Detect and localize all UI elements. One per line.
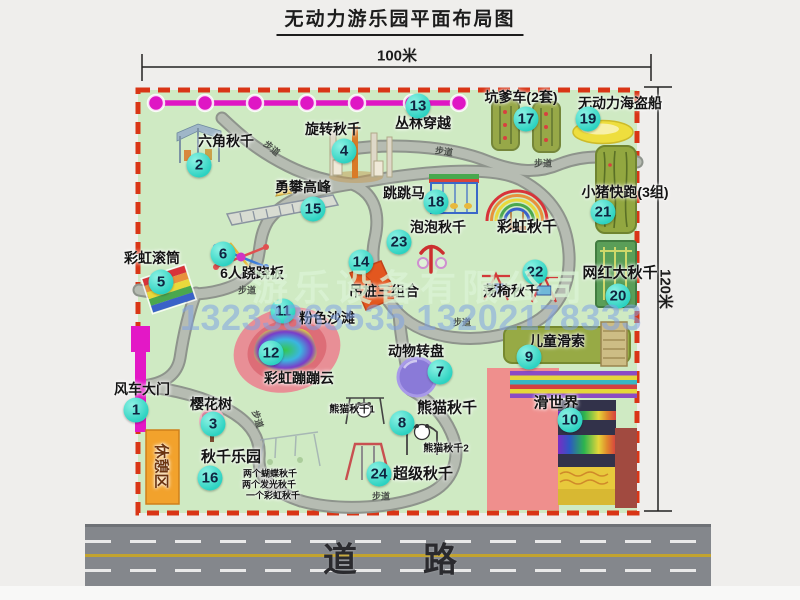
poi-badge-22: 22 bbox=[523, 260, 548, 285]
annotation-label: 熊猫秋千1 bbox=[329, 401, 375, 416]
poi-badge-14: 14 bbox=[349, 250, 374, 275]
poi-label-20: 网红大秋千 bbox=[582, 262, 657, 283]
poi-badge-24: 24 bbox=[367, 462, 392, 487]
walkway-label: 步道 bbox=[372, 490, 390, 503]
poi-label-21: 小猪快跑(3组) bbox=[581, 182, 668, 202]
walkway-label: 步道 bbox=[534, 157, 552, 170]
poi-label-12: 彩虹蹦蹦云 bbox=[264, 368, 334, 388]
poi-badge-23: 23 bbox=[387, 230, 412, 255]
walkway-label: 步道 bbox=[261, 137, 283, 159]
poi-label-17: 坑爹车(2套) bbox=[484, 87, 557, 107]
poi-label-15: 勇攀高峰 bbox=[275, 177, 331, 197]
annotation-label: 休憩区 bbox=[152, 443, 173, 488]
poi-badge-20: 20 bbox=[606, 284, 631, 309]
walkway-label: 步道 bbox=[434, 143, 454, 158]
poi-label-5: 彩虹滚筒 bbox=[124, 248, 180, 268]
walkway-label: 步道 bbox=[453, 316, 471, 329]
poi-badge-11: 11 bbox=[271, 299, 296, 324]
poi-label-14: 吊桩三组合 bbox=[349, 281, 419, 301]
poi-label-4: 旋转秋千 bbox=[305, 119, 361, 139]
poi-label-24: 超级秋千 bbox=[393, 463, 453, 484]
poi-badge-1: 1 bbox=[124, 398, 149, 423]
poi-badge-3: 3 bbox=[201, 412, 226, 437]
poi-label-18: 跳跳马 bbox=[383, 183, 425, 203]
poi-label-7: 动物转盘 bbox=[388, 341, 444, 361]
poi-badge-5: 5 bbox=[149, 270, 174, 295]
poi-badge-12: 12 bbox=[259, 341, 284, 366]
poi-badge-9: 9 bbox=[517, 345, 542, 370]
poi-badge-19: 19 bbox=[576, 107, 601, 132]
poi-badge-2: 2 bbox=[187, 153, 212, 178]
label-layer: 风车大门1六角秋千2樱花树3旋转秋千4彩虹滚筒56人跷跷板6动物转盘7熊猫秋千8… bbox=[0, 0, 800, 600]
poi-badge-8: 8 bbox=[390, 411, 415, 436]
poi-label-6: 6人跷跷板 bbox=[220, 263, 284, 283]
poi-badge-10: 10 bbox=[558, 408, 583, 433]
screenshot-stage: 无动力游乐园平面布局图 100米 120米 bbox=[0, 0, 800, 600]
poi-badge-16: 16 bbox=[198, 466, 223, 491]
poi-label-8: 熊猫秋千 bbox=[417, 397, 477, 418]
annotation-label: 熊猫秋千2 bbox=[423, 440, 469, 455]
poi-badge-6: 6 bbox=[211, 242, 236, 267]
poi-label-23: 泡泡秋千 bbox=[410, 217, 466, 237]
walkway-label: 步道 bbox=[249, 408, 267, 429]
poi-badge-18: 18 bbox=[424, 190, 449, 215]
annotation-label: 一个彩虹秋千 bbox=[246, 489, 300, 502]
poi-label-11: 粉色沙滩 bbox=[299, 308, 355, 328]
poi-label-1: 风车大门 bbox=[114, 379, 170, 399]
poi-badge-7: 7 bbox=[428, 360, 453, 385]
annotation-label: 彩虹秋千 bbox=[497, 216, 557, 237]
poi-label-16: 秋千乐园 bbox=[201, 446, 261, 467]
poi-badge-13: 13 bbox=[406, 94, 431, 119]
walkway-label: 步道 bbox=[238, 284, 256, 297]
poi-label-2: 六角秋千 bbox=[198, 131, 254, 151]
poi-badge-17: 17 bbox=[514, 107, 539, 132]
poi-badge-15: 15 bbox=[301, 197, 326, 222]
poi-badge-21: 21 bbox=[591, 200, 616, 225]
poi-badge-4: 4 bbox=[332, 139, 357, 164]
